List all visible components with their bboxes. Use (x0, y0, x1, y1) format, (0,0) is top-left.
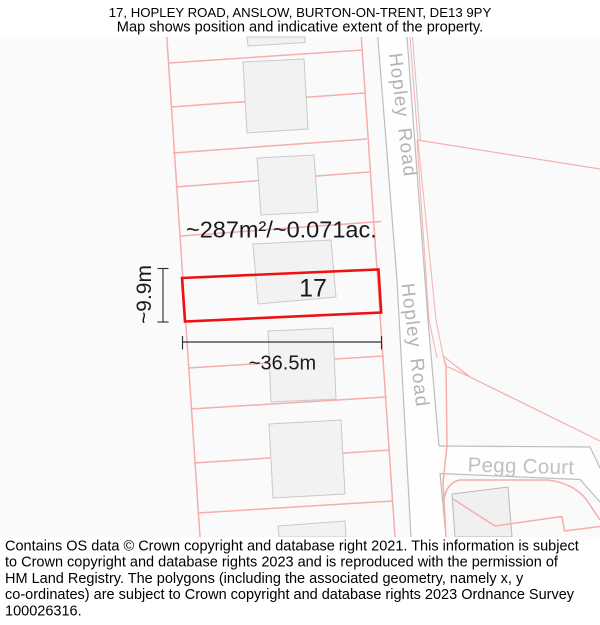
svg-text:17: 17 (299, 275, 327, 303)
svg-text:Map shows position and indicat: Map shows position and indicative extent… (117, 20, 483, 36)
svg-text:Pegg Court: Pegg Court (467, 454, 574, 480)
svg-text:Contains OS data © Crown copyr: Contains OS data © Crown copyright and d… (5, 539, 579, 555)
svg-text:co-ordinates) are subject to C: co-ordinates) are subject to Crown copyr… (5, 587, 575, 603)
svg-text:to Crown copyright and databas: to Crown copyright and database rights 2… (5, 555, 559, 571)
svg-text:~9.9m: ~9.9m (133, 265, 156, 324)
svg-text:~36.5m: ~36.5m (249, 353, 316, 375)
svg-text:HM Land Registry. The polygons: HM Land Registry. The polygons (includin… (5, 571, 524, 587)
svg-text:~287m²/~0.071ac.: ~287m²/~0.071ac. (186, 217, 377, 243)
svg-text:17, HOPLEY ROAD, ANSLOW, BURTO: 17, HOPLEY ROAD, ANSLOW, BURTON-ON-TRENT… (109, 5, 492, 20)
svg-text:100026316.: 100026316. (5, 603, 82, 619)
